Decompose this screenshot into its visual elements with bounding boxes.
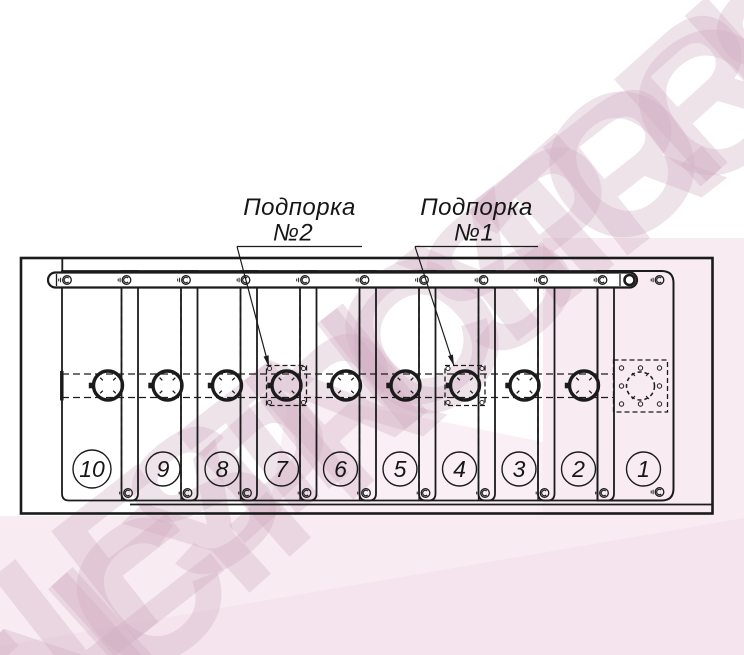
stringer-assembly-drawing: 10 9 8 7 6 5 4 3 2 1 Подпорка №2 П <box>0 0 744 655</box>
label-support-1-line1: Подпорка <box>420 194 533 221</box>
panel-number: 1 <box>637 456 650 482</box>
axis-lines <box>62 374 614 398</box>
baluster-holes <box>89 371 599 400</box>
label-support-2-line1: Подпорка <box>243 194 356 221</box>
panel-number: 9 <box>157 456 170 482</box>
leader-line-support-1 <box>415 247 454 367</box>
panel-bottom-screws <box>120 488 664 498</box>
label-support-1-line2: №1 <box>454 220 494 247</box>
drawing-page: LESTNICY-PROSTO.RU LESTNICY-PROSTO.RU <box>0 0 744 655</box>
handrail-rail <box>48 273 637 288</box>
panel-number: 10 <box>79 456 105 482</box>
wall-plate-marker <box>614 360 668 412</box>
panel-number: 8 <box>216 456 229 482</box>
leader-line-support-2 <box>237 247 269 368</box>
drawing-frame <box>21 258 713 514</box>
panel-number: 7 <box>275 456 289 482</box>
panel-number: 5 <box>394 456 407 482</box>
label-support-2-line2: №2 <box>273 220 313 247</box>
panel-number: 3 <box>513 456 526 482</box>
panel-number: 6 <box>334 456 347 482</box>
panel-number: 4 <box>453 456 466 482</box>
arrowhead <box>448 355 454 367</box>
arrowhead <box>264 355 269 367</box>
panel-number: 2 <box>571 456 585 482</box>
